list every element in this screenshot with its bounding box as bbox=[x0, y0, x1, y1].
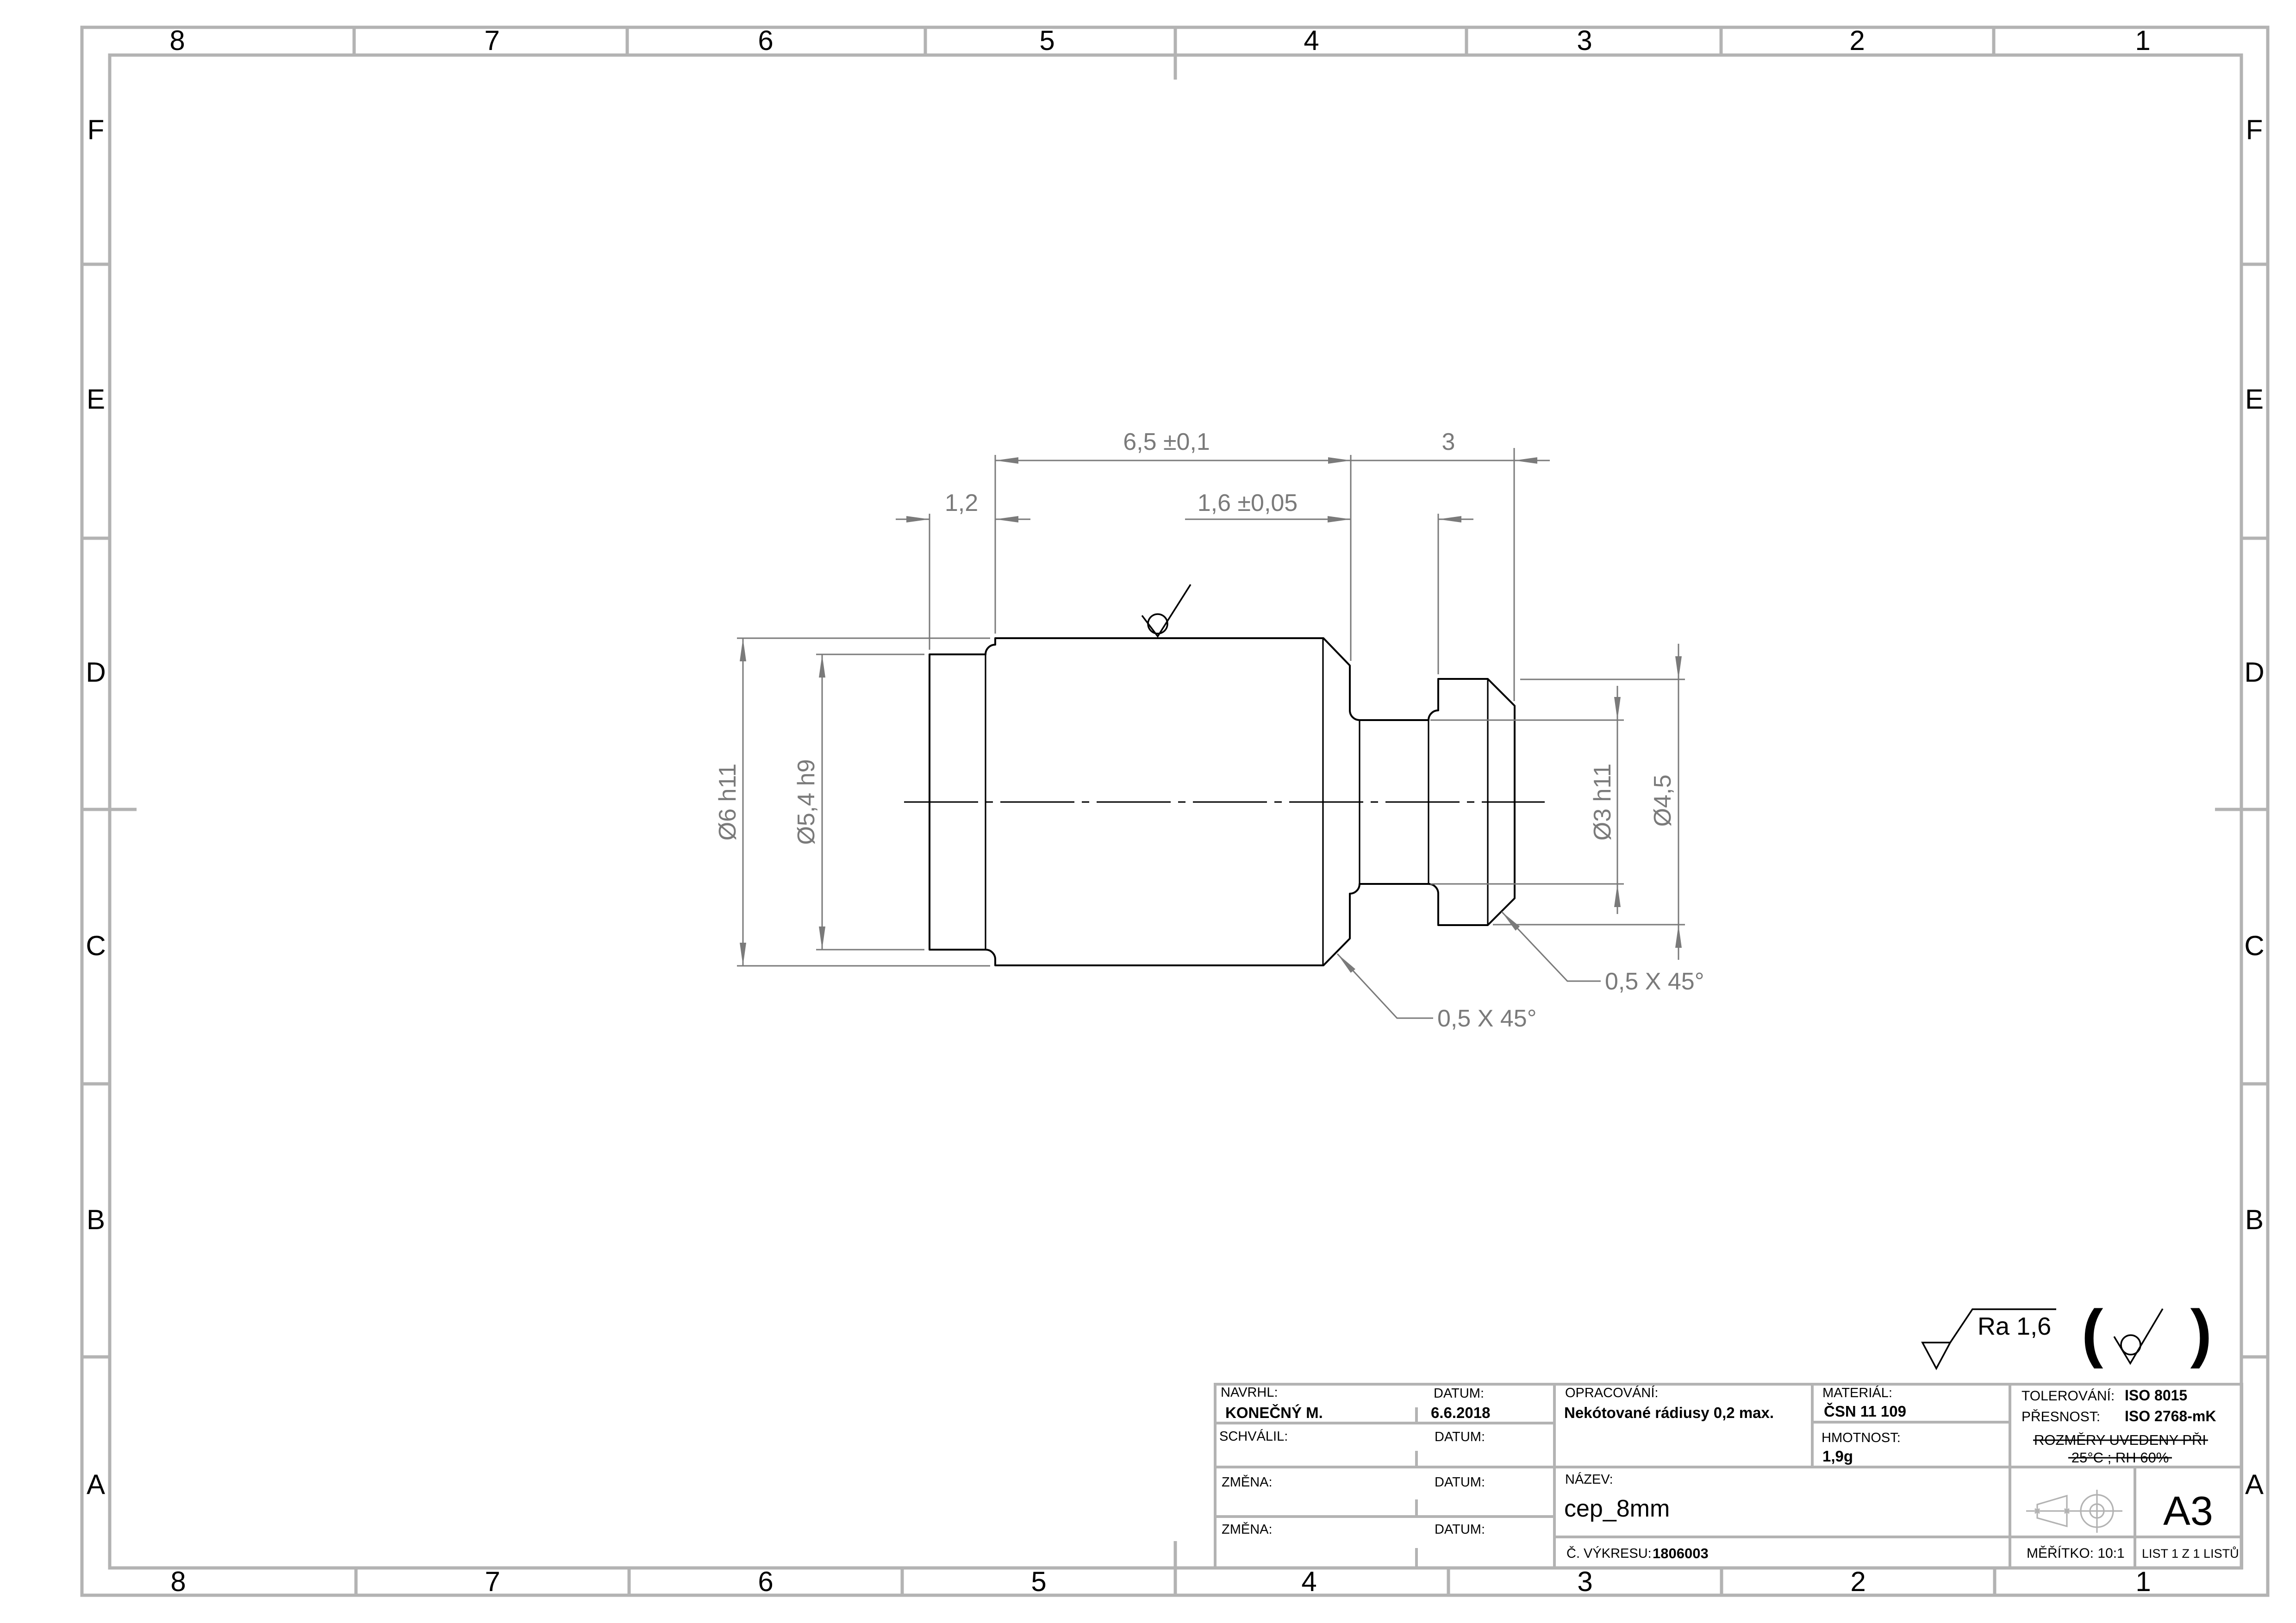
svg-text:Ø6 h11: Ø6 h11 bbox=[714, 764, 741, 841]
svg-text:3: 3 bbox=[1442, 429, 1455, 455]
svg-text:5: 5 bbox=[1031, 1566, 1046, 1597]
svg-text:Ra 1,6: Ra 1,6 bbox=[1978, 1312, 2051, 1340]
svg-text:D: D bbox=[2244, 657, 2264, 688]
svg-text:Č. VÝKRESU:: Č. VÝKRESU: bbox=[1566, 1545, 1652, 1561]
svg-text:ČSN 11 109: ČSN 11 109 bbox=[1824, 1402, 1906, 1420]
svg-text:6,5 ±0,1: 6,5 ±0,1 bbox=[1123, 429, 1210, 455]
svg-text:SCHVÁLIL:: SCHVÁLIL: bbox=[1219, 1429, 1288, 1444]
svg-text:1,9g: 1,9g bbox=[1822, 1448, 1853, 1465]
svg-text:1806003: 1806003 bbox=[1653, 1545, 1709, 1561]
svg-text:1: 1 bbox=[2135, 25, 2150, 56]
svg-text:6.6.2018: 6.6.2018 bbox=[1431, 1404, 1490, 1421]
svg-text:5: 5 bbox=[1039, 25, 1054, 56]
svg-text:3: 3 bbox=[1577, 1566, 1592, 1597]
svg-text:C: C bbox=[86, 930, 106, 961]
svg-text:B: B bbox=[87, 1204, 105, 1235]
svg-text:2: 2 bbox=[1850, 1566, 1865, 1597]
svg-text:E: E bbox=[87, 384, 105, 415]
svg-text:ISO 8015: ISO 8015 bbox=[2125, 1387, 2187, 1404]
svg-text:8: 8 bbox=[169, 25, 185, 56]
svg-text:NÁZEV:: NÁZEV: bbox=[1565, 1472, 1613, 1487]
svg-text:B: B bbox=[2245, 1204, 2264, 1235]
svg-text:1: 1 bbox=[2135, 1566, 2151, 1597]
svg-text:LIST 1 Z 1 LISTŮ: LIST 1 Z 1 LISTŮ bbox=[2142, 1546, 2239, 1561]
svg-text:6: 6 bbox=[758, 1566, 773, 1597]
svg-text:7: 7 bbox=[484, 25, 499, 56]
svg-text:8: 8 bbox=[170, 1566, 186, 1597]
svg-text:4: 4 bbox=[1304, 25, 1319, 56]
svg-text:1,6 ±0,05: 1,6 ±0,05 bbox=[1198, 490, 1298, 516]
svg-text:D: D bbox=[86, 657, 106, 688]
svg-text:ISO 2768-mK: ISO 2768-mK bbox=[2125, 1408, 2216, 1424]
svg-text:MATERIÁL:: MATERIÁL: bbox=[1822, 1385, 1892, 1400]
svg-text:DATUM:: DATUM: bbox=[1435, 1475, 1485, 1490]
svg-text:(: ( bbox=[2082, 1296, 2103, 1369]
svg-text:TOLEROVÁNÍ:: TOLEROVÁNÍ: bbox=[2021, 1388, 2115, 1404]
svg-text:HMOTNOST:: HMOTNOST: bbox=[1822, 1430, 1901, 1445]
svg-text:2: 2 bbox=[1849, 25, 1865, 56]
svg-text:ZMĚNA:: ZMĚNA: bbox=[1222, 1522, 1273, 1537]
svg-text:A3: A3 bbox=[2163, 1488, 2213, 1534]
svg-text:ZMĚNA:: ZMĚNA: bbox=[1222, 1474, 1273, 1490]
svg-text:Ø4,5: Ø4,5 bbox=[1649, 775, 1676, 827]
svg-text:0,5 X 45°: 0,5 X 45° bbox=[1605, 968, 1704, 995]
svg-text:): ) bbox=[2190, 1296, 2212, 1369]
svg-text:3: 3 bbox=[1577, 25, 1592, 56]
svg-text:NAVRHL:: NAVRHL: bbox=[1221, 1385, 1278, 1400]
svg-text:C: C bbox=[2244, 930, 2264, 961]
svg-text:6: 6 bbox=[758, 25, 773, 56]
svg-text:OPRACOVÁNÍ:: OPRACOVÁNÍ: bbox=[1565, 1385, 1658, 1400]
svg-text:PŘESNOST:: PŘESNOST: bbox=[2021, 1409, 2100, 1424]
svg-text:0,5 X 45°: 0,5 X 45° bbox=[1437, 1005, 1537, 1032]
svg-text:Ø5,4 h9: Ø5,4 h9 bbox=[793, 759, 820, 845]
svg-text:KONEČNÝ M.: KONEČNÝ M. bbox=[1225, 1404, 1323, 1421]
svg-text:MĚŘÍTKO: 10:1: MĚŘÍTKO: 10:1 bbox=[2027, 1546, 2125, 1561]
svg-text:F: F bbox=[87, 114, 105, 145]
svg-text:4: 4 bbox=[1301, 1566, 1316, 1597]
svg-text:F: F bbox=[2246, 114, 2263, 145]
svg-text:Nekótované rádiusy 0,2 max.: Nekótované rádiusy 0,2 max. bbox=[1564, 1404, 1774, 1421]
svg-text:Ø3 h11: Ø3 h11 bbox=[1589, 764, 1616, 841]
svg-text:cep_8mm: cep_8mm bbox=[1564, 1495, 1670, 1522]
svg-text:7: 7 bbox=[485, 1566, 500, 1597]
svg-text:A: A bbox=[2245, 1469, 2264, 1500]
svg-text:DATUM:: DATUM: bbox=[1434, 1386, 1484, 1401]
svg-text:1,2: 1,2 bbox=[945, 490, 978, 516]
svg-text:DATUM:: DATUM: bbox=[1435, 1430, 1485, 1444]
svg-text:E: E bbox=[2245, 384, 2264, 415]
svg-text:DATUM:: DATUM: bbox=[1435, 1522, 1485, 1537]
svg-text:A: A bbox=[87, 1469, 105, 1500]
